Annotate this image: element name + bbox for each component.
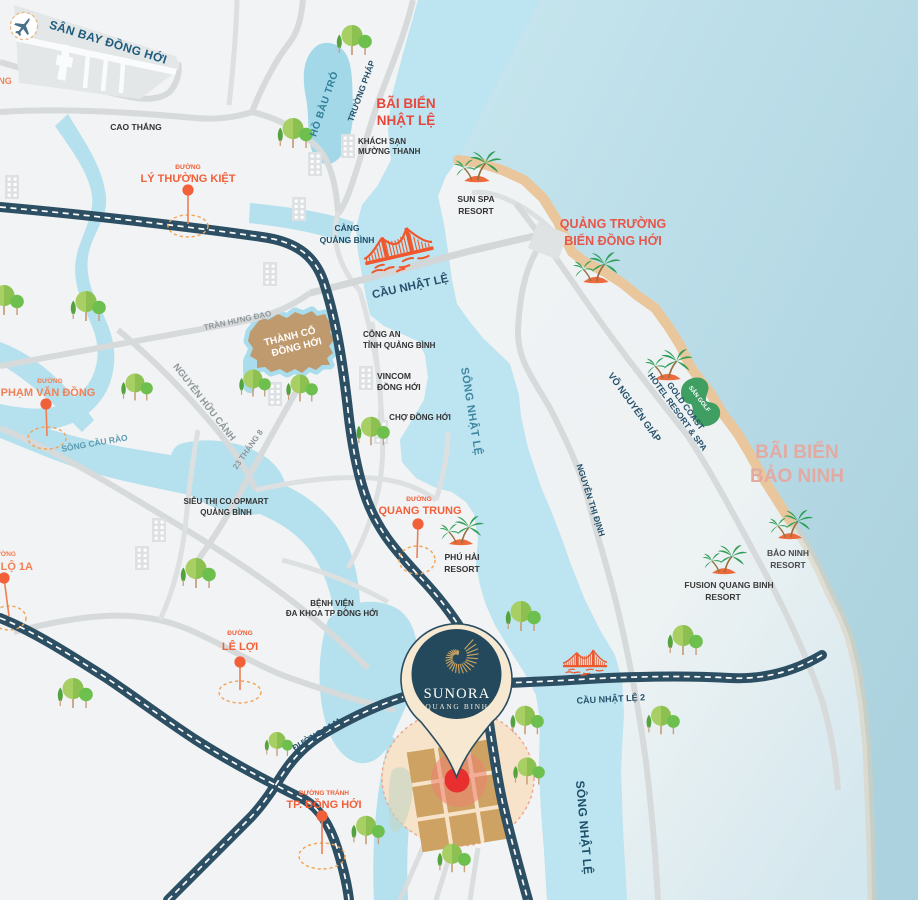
svg-text:ỐC LỘ 1A: ỐC LỘ 1A (0, 559, 33, 573)
svg-text:TỈNH QUẢNG BÌNH: TỈNH QUẢNG BÌNH (363, 341, 436, 350)
svg-text:CAO THẮNG: CAO THẮNG (110, 122, 162, 132)
svg-text:BỆNH VIỆN: BỆNH VIỆN (310, 599, 354, 608)
svg-text:LÝ THƯỜNG KIỆT: LÝ THƯỜNG KIỆT (141, 172, 236, 185)
svg-text:SIÊU THỊ CO.OPMART: SIÊU THỊ CO.OPMART (184, 497, 269, 506)
svg-text:ĐỒNG HỚI: ĐỒNG HỚI (377, 381, 421, 392)
svg-text:ĐƯỜNG TRÁNH: ĐƯỜNG TRÁNH (299, 788, 349, 797)
svg-text:PHÚ HẢI: PHÚ HẢI (445, 551, 480, 562)
svg-text:BÃI BIỂN: BÃI BIỂN (755, 441, 838, 463)
svg-text:ĐA KHOA TP ĐỒNG HỚI: ĐA KHOA TP ĐỒNG HỚI (286, 608, 378, 618)
svg-text:BÃI BIỂN: BÃI BIỂN (376, 96, 435, 111)
svg-text:QUANG TRUNG: QUANG TRUNG (378, 505, 461, 517)
svg-text:QUANG BINH: QUANG BINH (425, 702, 488, 711)
svg-text:BẢO NINH: BẢO NINH (767, 547, 809, 558)
svg-text:MƯỜNG THANH: MƯỜNG THANH (358, 147, 421, 156)
svg-text:FUSION QUANG BINH: FUSION QUANG BINH (684, 580, 773, 590)
svg-text:ĐƯỜNG: ĐƯỜNG (0, 549, 16, 558)
svg-text:CẢNG: CẢNG (334, 222, 359, 233)
svg-text:RESORT: RESORT (705, 592, 741, 602)
svg-text:ĐƯỜNG: ĐƯỜNG (406, 494, 431, 503)
svg-text:NG: NG (0, 76, 12, 86)
svg-text:QUẢNG BÌNH: QUẢNG BÌNH (320, 234, 375, 245)
svg-text:PHẠM VĂN ĐỒNG: PHẠM VĂN ĐỒNG (1, 386, 96, 399)
svg-text:QUẢNG BÌNH: QUẢNG BÌNH (200, 508, 252, 517)
svg-text:RESORT: RESORT (458, 206, 494, 216)
svg-text:NHẬT LỆ: NHẬT LỆ (377, 113, 436, 128)
svg-text:VINCOM: VINCOM (377, 371, 411, 381)
svg-text:BIỂN ĐỒNG HỚI: BIỂN ĐỒNG HỚI (564, 233, 661, 248)
svg-text:CÔNG AN: CÔNG AN (363, 330, 401, 339)
svg-text:ĐƯỜNG: ĐƯỜNG (37, 376, 62, 385)
svg-text:RESORT: RESORT (444, 564, 480, 574)
svg-text:BẢO NINH: BẢO NINH (750, 465, 844, 487)
svg-text:LÊ LỢI: LÊ LỢI (222, 640, 258, 653)
svg-text:SUN SPA: SUN SPA (457, 194, 494, 204)
svg-text:RESORT: RESORT (770, 560, 806, 570)
svg-text:ĐƯỜNG: ĐƯỜNG (175, 162, 200, 171)
svg-text:ĐƯỜNG: ĐƯỜNG (227, 628, 252, 637)
svg-text:QUẢNG TRƯỜNG: QUẢNG TRƯỜNG (560, 216, 666, 231)
svg-text:KHÁCH SẠN: KHÁCH SẠN (358, 137, 406, 146)
svg-text:TP. ĐỒNG HỚI: TP. ĐỒNG HỚI (286, 798, 361, 811)
svg-text:SUNORA: SUNORA (424, 686, 491, 702)
svg-text:CHỢ ĐỒNG HỚI: CHỢ ĐỒNG HỚI (389, 412, 451, 422)
